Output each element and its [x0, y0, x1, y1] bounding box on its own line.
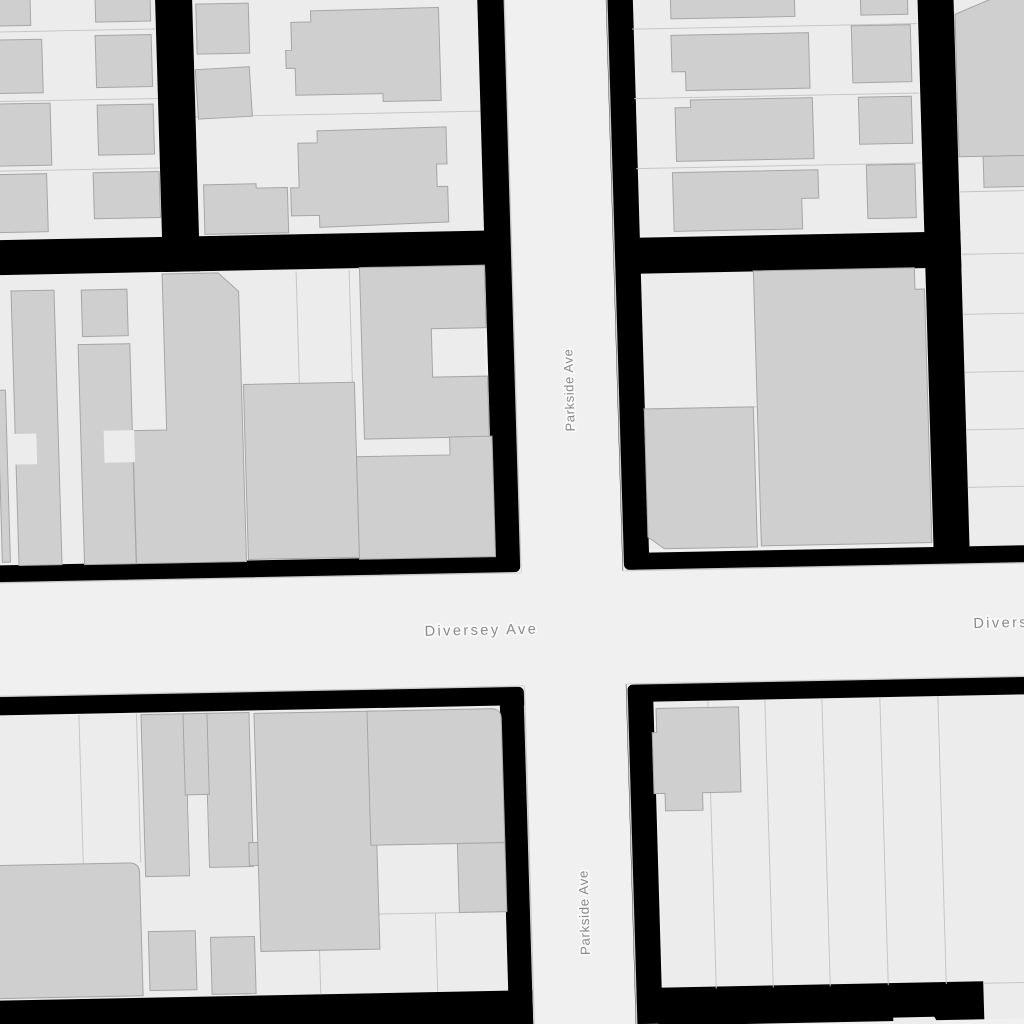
svg-text:Diversey Ave: Diversey Ave [973, 614, 1024, 632]
svg-text:Parkside Ave: Parkside Ave [560, 349, 577, 432]
svg-text:Parkside Ave: Parkside Ave [576, 870, 593, 955]
svg-text:Diversey Ave: Diversey Ave [424, 622, 538, 640]
